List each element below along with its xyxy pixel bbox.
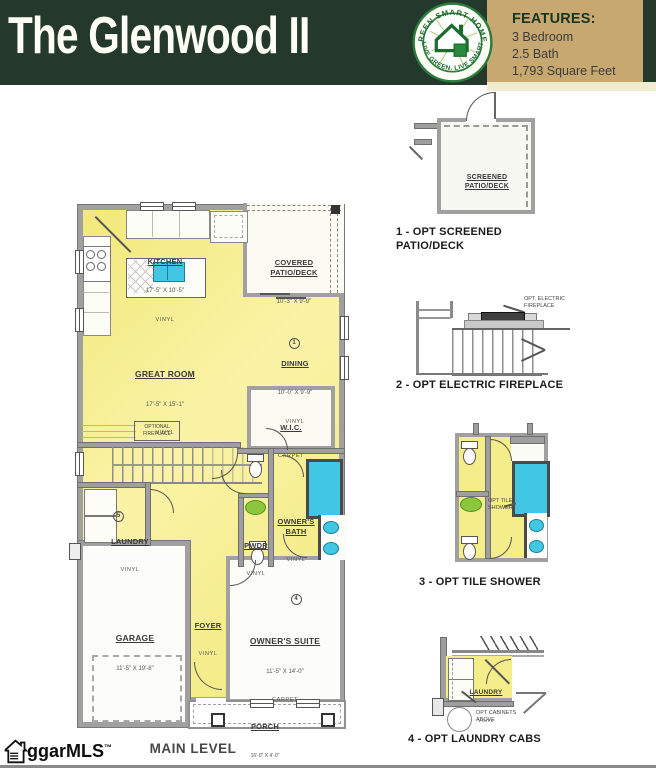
opt1-caption: 1 - OPT SCREENED PATIO/DECK (396, 226, 526, 254)
counter-divider (83, 312, 109, 313)
label-owners-bath: OWNER'S BATH VINYL 4 (272, 496, 320, 628)
features-panel: FEATURES: 3 Bedroom 2.5 Bath 1,793 Squar… (487, 0, 643, 82)
label-kitchen: KITCHEN 17'-5" X 10'-5" VINYL (120, 236, 210, 345)
garage-side-stub (69, 543, 81, 560)
label-porch: PORCH 16'-0" X 4'-0" (235, 701, 295, 768)
opt1-diag-tick (409, 146, 423, 160)
wall-laundry-top (78, 483, 150, 487)
feature-sqft: 1,793 Square Feet (512, 63, 643, 79)
option-marker: 4 (291, 594, 302, 605)
opt2-stairs (452, 330, 542, 376)
counter-divider (83, 292, 109, 293)
opt4-deck-hatch (480, 636, 538, 650)
window (340, 356, 349, 380)
plan-title: The Glenwood II (8, 6, 310, 66)
opt4-annotation: OPT CABINETS ABOVE (476, 710, 528, 724)
opt2-caption: 2 - OPT ELECTRIC FIREPLACE (396, 379, 586, 393)
patio-screen-top (247, 205, 341, 206)
label-laundry: LAUNDRY VINYL (100, 516, 160, 595)
opt2-rail (419, 309, 451, 311)
mls-watermark: ggarMLS™ (27, 741, 112, 762)
opt3-sink-icon (460, 497, 482, 512)
counter-divider (152, 210, 153, 237)
patio-screen-right2 (337, 208, 338, 293)
window (340, 316, 349, 340)
opt1-stub2 (415, 140, 431, 144)
stair-rail (112, 464, 262, 466)
window (172, 202, 196, 211)
patio-screen-top2 (247, 210, 341, 211)
optional-fireplace-note: OPTIONAL FIREPLACE (134, 421, 180, 441)
vanity-sink (323, 542, 339, 555)
mls-house-icon (2, 738, 29, 765)
kitchen-counter-top (126, 210, 210, 239)
opt3-vanity-sink (529, 540, 544, 553)
window (75, 452, 84, 476)
porch-post-left (211, 713, 225, 727)
feature-baths: 2.5 Bath (512, 46, 643, 62)
counter-divider (179, 210, 180, 237)
label-foyer: FOYER VINYL (185, 600, 231, 679)
label-garage: GARAGE 11'-5" X 19'-8" (95, 612, 175, 694)
window (75, 250, 84, 274)
pwdr-sink-icon (245, 500, 266, 515)
level-label: MAIN LEVEL (133, 741, 253, 756)
refrigerator-inner (214, 215, 243, 238)
label-wic: W.I.C. CARPET (255, 402, 327, 481)
label-great-room: GREAT ROOM 17'-5" X 15'-1" VINYL (115, 348, 215, 458)
feature-bedrooms: 3 Bedroom (512, 29, 643, 45)
burner (97, 250, 106, 259)
opt1-room-label: SCREENED PATIO/DECK (446, 152, 528, 212)
features-heading: FEATURES: (512, 11, 643, 27)
opt4-meter-box (432, 698, 444, 716)
label-pwdr: PWDR VINYL (236, 520, 276, 599)
opt1-stub (415, 124, 439, 128)
opt4-wedge (516, 692, 546, 694)
vanity-sink (323, 521, 339, 534)
opt1-door-arc (466, 92, 495, 121)
wall-pwdr-top (239, 494, 273, 497)
opt2-post (416, 301, 419, 375)
opt3-toilet-bowl (463, 448, 476, 465)
front-door-gap (196, 698, 226, 704)
opt3-vanity-sink (529, 519, 544, 532)
opt3-stub (474, 424, 478, 434)
opt3-caption: 3 - OPT TILE SHOWER (419, 576, 579, 590)
burner (97, 262, 106, 271)
opt4-cabinet-dash (452, 658, 454, 699)
green-smart-homes-badge: GREEN SMART HOMES LIVE GREEN. LIVE SMART (412, 2, 493, 83)
panel-shadow (487, 82, 656, 91)
opt3-wall-top-right (511, 437, 544, 443)
burner (86, 262, 95, 271)
floor-plan-sheet: The Glenwood II FEATURES: 3 Bedroom 2.5 … (0, 0, 656, 768)
opt2-bottom-line (416, 373, 548, 375)
opt3-stub2 (528, 424, 532, 434)
window (140, 202, 164, 211)
opt2-annotation: OPT. ELECTRIC FIREPLACE (524, 296, 584, 310)
opt3-wall-mid (457, 492, 488, 496)
burner (86, 250, 95, 259)
opt3-toilet2-bowl (463, 543, 476, 560)
patio-corner-post (331, 205, 340, 214)
opt4-beam (452, 650, 544, 653)
window (75, 308, 84, 332)
opt4-caption: 4 - OPT LAUNDRY CABS (408, 733, 578, 747)
opt2-rail2 (419, 317, 451, 319)
